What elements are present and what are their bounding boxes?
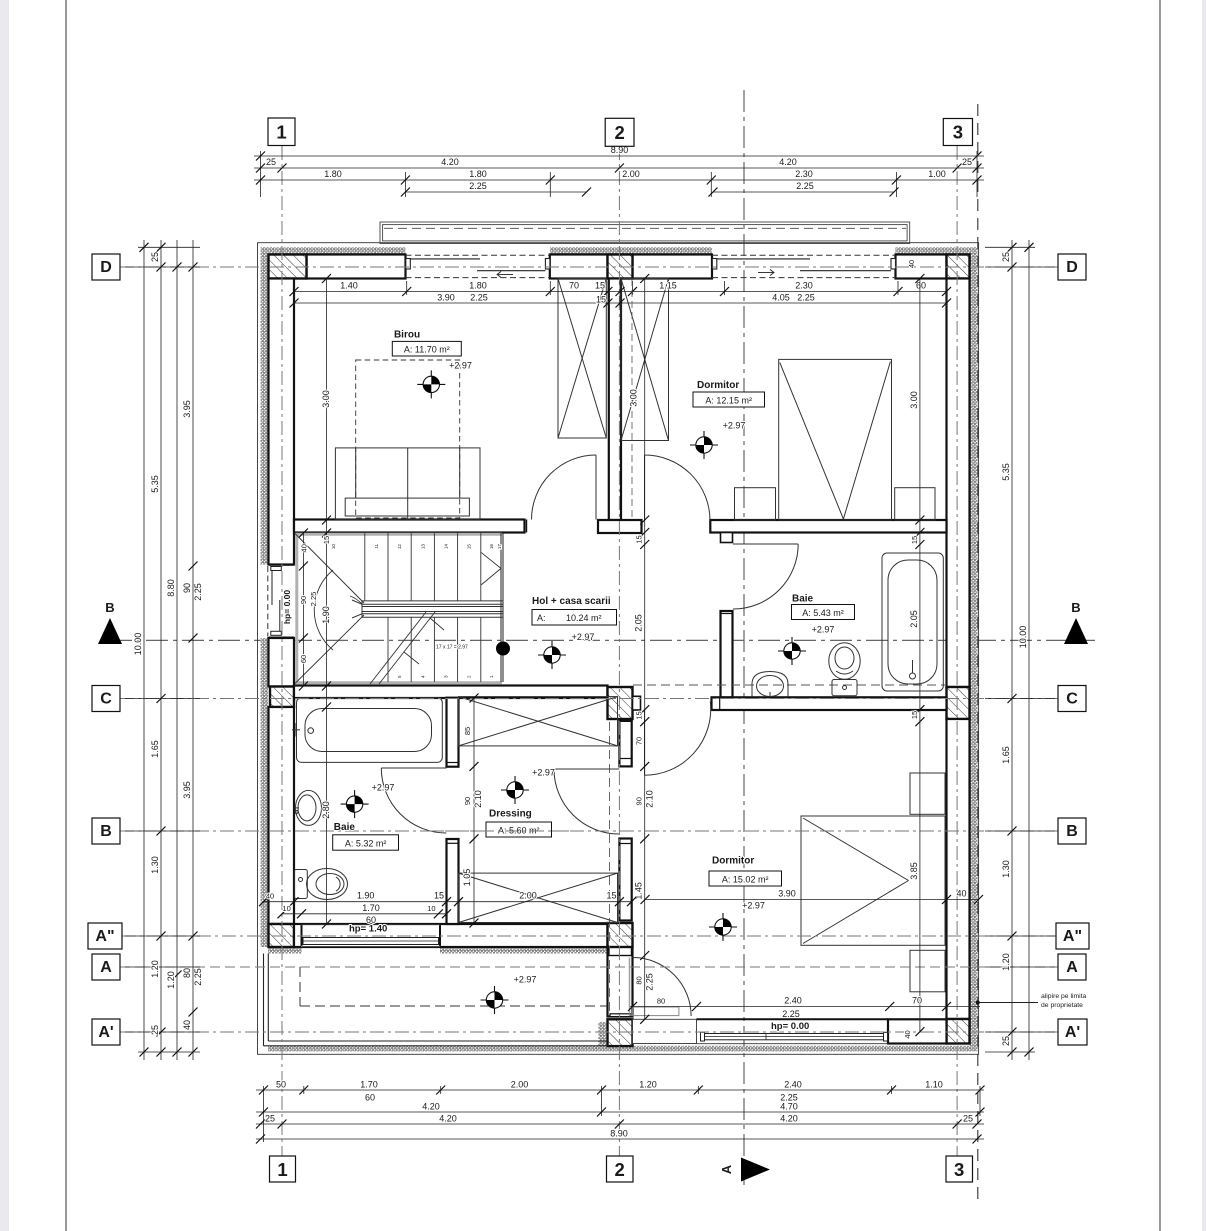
svg-text:3.95: 3.95 (182, 400, 192, 418)
svg-text:1.30: 1.30 (150, 856, 160, 874)
svg-text:70: 70 (569, 281, 579, 291)
svg-text:2.25: 2.25 (796, 181, 814, 191)
svg-text:+2.97: +2.97 (812, 625, 835, 635)
svg-text:15: 15 (635, 711, 644, 719)
svg-text:1.65: 1.65 (1001, 746, 1011, 764)
svg-text:3.85: 3.85 (909, 862, 919, 880)
svg-text:1.10: 1.10 (925, 1080, 943, 1090)
svg-text:2.80: 2.80 (321, 801, 331, 819)
svg-text:1.20: 1.20 (639, 1080, 657, 1090)
svg-text:25: 25 (150, 1025, 160, 1035)
svg-text:1.80: 1.80 (469, 169, 487, 179)
svg-text:1.80: 1.80 (324, 169, 342, 179)
svg-text:2.00: 2.00 (519, 891, 537, 901)
svg-text:+2.97: +2.97 (372, 783, 395, 793)
svg-text:4.20: 4.20 (439, 1114, 457, 1124)
svg-text:3: 3 (444, 675, 449, 678)
svg-text:B: B (1066, 823, 1078, 840)
svg-text:A: 11.70 m²: A: 11.70 m² (404, 344, 450, 354)
svg-text:4.20: 4.20 (441, 157, 459, 167)
svg-text:alipire pe limita: alipire pe limita (1041, 993, 1087, 1000)
svg-text:1.30: 1.30 (1001, 860, 1011, 878)
svg-text:4: 4 (420, 675, 425, 678)
svg-text:10: 10 (331, 544, 336, 550)
svg-text:1.90: 1.90 (321, 606, 331, 624)
svg-text:1.40: 1.40 (340, 281, 358, 291)
svg-text:2.25: 2.25 (797, 293, 815, 303)
svg-text:1.70: 1.70 (362, 903, 380, 913)
svg-text:15: 15 (910, 711, 919, 719)
svg-text:A: A (100, 959, 112, 976)
svg-text:1.45: 1.45 (634, 882, 644, 900)
svg-text:4.20: 4.20 (422, 1102, 440, 1112)
svg-text:10.00: 10.00 (1018, 626, 1028, 649)
svg-text:A: 5.32 m²: A: 5.32 m² (345, 838, 387, 848)
svg-text:10.00: 10.00 (133, 633, 143, 656)
svg-text:B: B (105, 600, 114, 615)
svg-text:+2.97: +2.97 (723, 421, 746, 431)
svg-text:B: B (1071, 600, 1080, 615)
svg-text:50: 50 (276, 1080, 286, 1090)
svg-text:A: 5.43 m²: A: 5.43 m² (802, 608, 844, 618)
svg-text:1: 1 (277, 1159, 287, 1180)
svg-text:2.05: 2.05 (909, 610, 919, 628)
svg-text:80: 80 (657, 997, 665, 1006)
svg-text:80: 80 (182, 968, 192, 978)
svg-text:D: D (1066, 259, 1078, 276)
svg-text:25: 25 (1001, 252, 1011, 262)
svg-text:2.30: 2.30 (795, 169, 813, 179)
svg-text:A": A" (95, 928, 114, 945)
svg-text:17 x 17 = 2.97: 17 x 17 = 2.97 (436, 645, 468, 651)
svg-text:5.35: 5.35 (150, 475, 160, 493)
svg-text:2: 2 (614, 122, 624, 143)
svg-text:60: 60 (299, 655, 308, 663)
svg-text:3.90: 3.90 (437, 293, 455, 303)
svg-text:Dormitor: Dormitor (697, 380, 739, 391)
svg-text:Baie: Baie (792, 594, 814, 605)
svg-text:A:: A: (537, 613, 546, 623)
svg-text:5.35: 5.35 (1001, 463, 1011, 481)
svg-text:Hol + casa scarii: Hol + casa scarii (532, 596, 611, 607)
svg-text:15: 15 (910, 536, 919, 544)
svg-text:2.10: 2.10 (473, 790, 483, 808)
svg-text:B: B (100, 823, 112, 840)
svg-text:2.10: 2.10 (645, 790, 655, 808)
svg-text:1: 1 (276, 122, 286, 143)
svg-text:15: 15 (322, 536, 331, 544)
svg-text:1: 1 (489, 675, 494, 678)
svg-text:25: 25 (266, 157, 276, 167)
svg-text:3.00: 3.00 (629, 389, 639, 407)
svg-text:15: 15 (434, 891, 444, 901)
svg-text:2.25: 2.25 (309, 592, 318, 607)
svg-text:60: 60 (365, 1093, 375, 1103)
svg-text:2.00: 2.00 (622, 169, 640, 179)
svg-text:3.00: 3.00 (321, 390, 331, 408)
svg-text:2: 2 (467, 675, 472, 678)
svg-text:3.90: 3.90 (778, 889, 796, 899)
svg-text:1.20: 1.20 (150, 960, 160, 978)
svg-text:4.20: 4.20 (780, 1114, 798, 1124)
svg-text:1.20: 1.20 (166, 971, 176, 989)
svg-text:2.30: 2.30 (795, 281, 813, 291)
svg-text:Dormitor: Dormitor (712, 856, 754, 867)
svg-text:A': A' (98, 1024, 113, 1041)
svg-text:13: 13 (420, 544, 425, 550)
svg-text:2.25: 2.25 (193, 968, 203, 986)
svg-text:1.65: 1.65 (150, 740, 160, 758)
svg-text:25: 25 (1001, 1036, 1011, 1046)
svg-text:A: 15.02 m²: A: 15.02 m² (722, 874, 769, 884)
svg-text:C: C (100, 691, 112, 708)
svg-text:2.40: 2.40 (784, 996, 802, 1006)
svg-text:15: 15 (606, 891, 616, 901)
svg-text:A": A" (1063, 928, 1082, 945)
svg-text:Baie: Baie (334, 822, 356, 833)
svg-text:90: 90 (182, 583, 192, 593)
svg-text:A: 12.15 m²: A: 12.15 m² (705, 395, 752, 405)
svg-text:2.25: 2.25 (645, 973, 655, 991)
svg-text:2.40: 2.40 (784, 1080, 802, 1090)
svg-text:+2.97: +2.97 (449, 361, 472, 371)
svg-text:70: 70 (635, 737, 644, 745)
svg-text:1.15: 1.15 (659, 281, 677, 291)
svg-text:25: 25 (963, 1114, 973, 1124)
svg-text:+2.97: +2.97 (572, 632, 595, 642)
svg-text:3: 3 (954, 1159, 964, 1180)
svg-text:8.80: 8.80 (166, 579, 176, 597)
svg-text:90: 90 (635, 797, 644, 805)
svg-text:Dressing: Dressing (489, 809, 532, 820)
svg-text:25: 25 (265, 1114, 275, 1124)
svg-text:40: 40 (182, 1020, 192, 1030)
svg-text:2.00: 2.00 (511, 1080, 529, 1090)
svg-text:hp= 1.40: hp= 1.40 (349, 924, 387, 935)
svg-text:25: 25 (150, 252, 160, 262)
svg-text:4.20: 4.20 (779, 157, 797, 167)
svg-text:4.05: 4.05 (772, 293, 790, 303)
svg-text:D: D (100, 259, 112, 276)
svg-text:14: 14 (444, 544, 449, 550)
svg-text:C: C (1066, 691, 1078, 708)
svg-text:+2.97: +2.97 (514, 975, 537, 985)
svg-text:2.25: 2.25 (782, 1009, 800, 1019)
svg-text:2.05: 2.05 (634, 614, 644, 632)
svg-text:10.24 m²: 10.24 m² (566, 613, 602, 623)
svg-text:2.25: 2.25 (470, 293, 488, 303)
svg-text:Birou: Birou (394, 330, 420, 341)
svg-text:40: 40 (907, 260, 916, 268)
svg-text:3: 3 (953, 122, 963, 143)
svg-text:40: 40 (266, 892, 274, 901)
svg-text:15: 15 (635, 535, 644, 543)
svg-text:15: 15 (595, 281, 605, 291)
svg-text:25: 25 (962, 157, 972, 167)
svg-text:16: 16 (489, 544, 494, 550)
svg-text:10: 10 (282, 904, 290, 913)
svg-text:70: 70 (912, 996, 922, 1006)
svg-text:15: 15 (596, 295, 606, 305)
svg-text:15: 15 (467, 544, 472, 550)
svg-text:A: A (719, 1164, 734, 1174)
svg-text:2: 2 (615, 1159, 625, 1180)
svg-text:hp= 0.00: hp= 0.00 (771, 1021, 809, 1032)
svg-text:40: 40 (956, 889, 966, 899)
svg-text:A': A' (1065, 1024, 1080, 1041)
svg-text:1.05: 1.05 (462, 869, 472, 887)
svg-text:90: 90 (463, 797, 472, 805)
svg-text:de proprietate: de proprietate (1041, 1002, 1083, 1009)
svg-text:A: A (1066, 959, 1078, 976)
svg-text:90: 90 (299, 596, 308, 604)
svg-text:85: 85 (463, 727, 472, 735)
svg-text:A: 5.60 m²: A: 5.60 m² (498, 825, 540, 835)
svg-text:2.25: 2.25 (469, 181, 487, 191)
svg-text:17: 17 (497, 544, 502, 550)
svg-text:3.95: 3.95 (182, 781, 192, 799)
svg-text:1.80: 1.80 (469, 281, 487, 291)
svg-text:+2.97: +2.97 (742, 901, 765, 911)
svg-text:4.70: 4.70 (780, 1102, 798, 1112)
svg-text:1.20: 1.20 (1001, 953, 1011, 971)
svg-text:1.00: 1.00 (928, 169, 946, 179)
svg-text:hp= 0.00: hp= 0.00 (282, 590, 292, 625)
svg-text:1.90: 1.90 (357, 891, 375, 901)
svg-text:1.70: 1.70 (360, 1080, 378, 1090)
svg-text:2.25: 2.25 (193, 583, 203, 601)
svg-text:11: 11 (374, 544, 379, 549)
svg-text:5: 5 (397, 675, 402, 678)
svg-text:40: 40 (300, 544, 309, 552)
svg-text:40: 40 (903, 1030, 912, 1038)
svg-text:80: 80 (635, 976, 644, 984)
svg-text:3.00: 3.00 (909, 391, 919, 409)
svg-text:60: 60 (916, 281, 926, 291)
svg-text:10: 10 (427, 904, 435, 913)
svg-text:12: 12 (397, 544, 402, 550)
svg-text:+2.97: +2.97 (532, 768, 555, 778)
svg-text:8.90: 8.90 (610, 1129, 628, 1139)
